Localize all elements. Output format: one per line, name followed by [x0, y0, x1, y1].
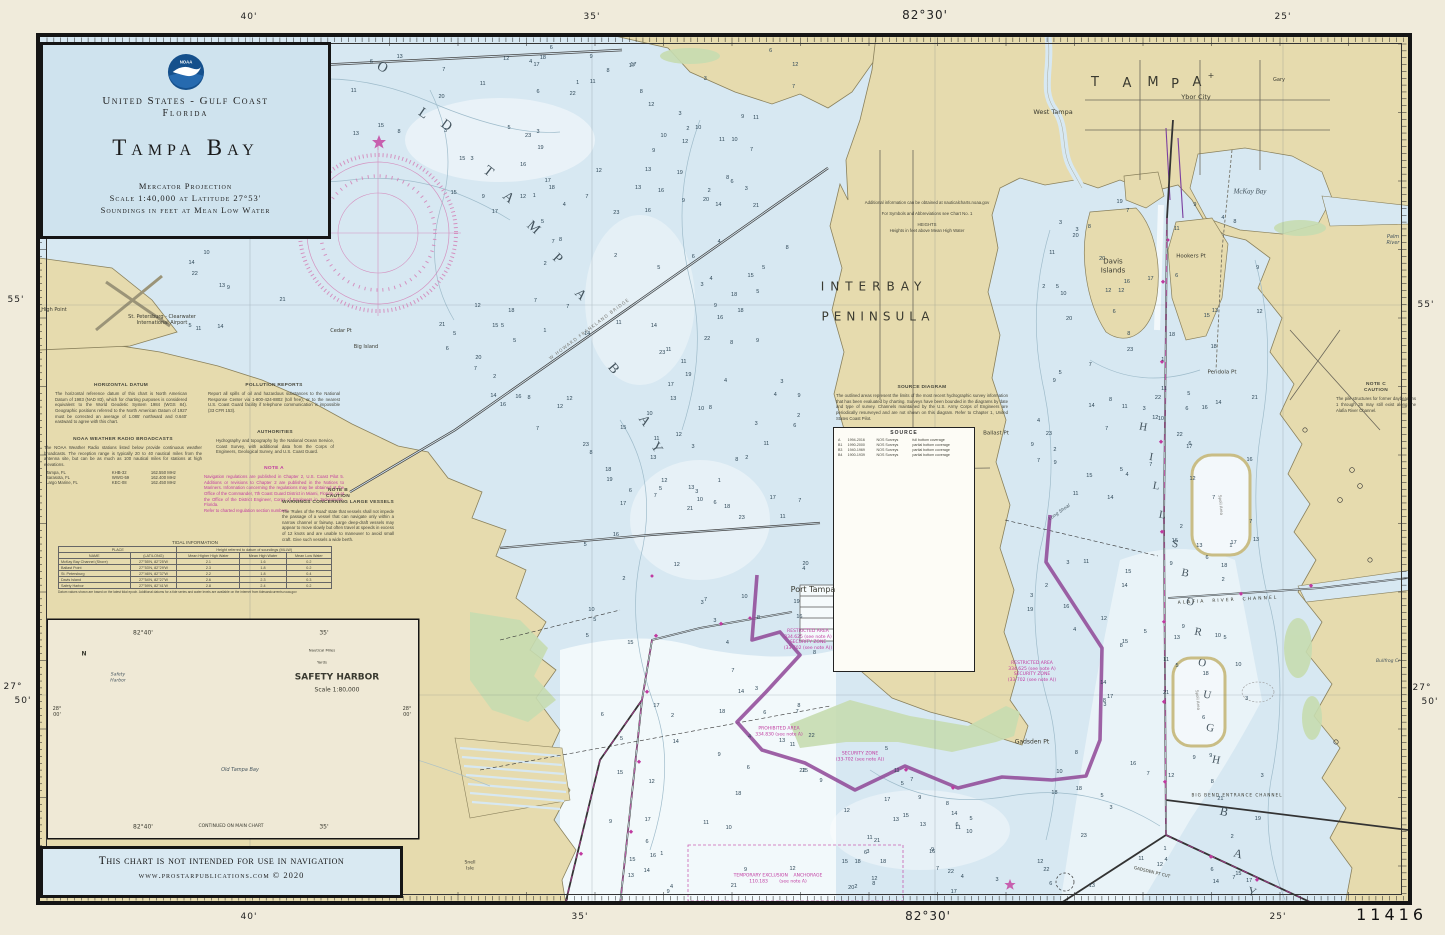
svg-text:NOAA: NOAA [179, 59, 192, 64]
map-label: M [1147, 75, 1158, 91]
graticule-label: 25' [1275, 12, 1292, 22]
map-label: CONTINUED ON MAIN CHART [198, 824, 263, 830]
map-label: Palm River [1387, 234, 1400, 247]
map-label: Yards [317, 661, 327, 666]
map-label: Ballast Pt [983, 431, 1009, 438]
map-label: RESTRICTED AREA 334.625 (see note A) SEC… [1008, 661, 1056, 684]
map-label: Hookers Pt [1176, 254, 1206, 261]
map-label: BIG BEND ENTRANCE CHANNEL [1191, 792, 1282, 797]
map-label: Ybor City [1181, 93, 1211, 101]
map-label: SECURITY ZONE (33-702 (see note A)) [836, 751, 884, 762]
map-label: 82°40' [133, 629, 153, 637]
graticule-label: 55' [1418, 300, 1435, 310]
graticule-label: 55' [8, 295, 25, 305]
map-label: 28° 00' [53, 706, 62, 719]
note-heights: Additional information can be obtained a… [862, 200, 992, 233]
graticule-label: 27° [1413, 683, 1432, 693]
graticule-label: 82°30' [902, 8, 948, 22]
title-region: United States - Gulf Coast [43, 95, 328, 107]
note-authorities: AUTHORITIESHydrography and topography by… [216, 430, 334, 455]
map-label: Snell Isle [465, 860, 476, 871]
chart-page: NOAA United States - Gulf Coast Florida … [0, 0, 1445, 935]
map-label: Davis Islands [1101, 257, 1125, 275]
map-label: Gary [1273, 77, 1285, 83]
map-label: P [1171, 77, 1179, 93]
map-label: + [1208, 71, 1215, 81]
map-label: A [1123, 76, 1132, 92]
note-note-c: NOTE C CAUTIONThe pile structures for fo… [1336, 382, 1416, 413]
graticule-label: 40' [241, 12, 258, 22]
disclaimer-box: This chart is not intended for use in na… [40, 846, 403, 898]
graticule-label: 35' [572, 912, 589, 922]
map-label: A [1193, 75, 1202, 91]
map-label: PENINSULA [822, 310, 935, 325]
map-label: 35' [319, 823, 328, 831]
map-label: West Tampa [1033, 108, 1072, 116]
publisher-url: www.prostarpublications.com © 2020 [43, 870, 400, 880]
title-block: NOAA United States - Gulf Coast Florida … [40, 42, 331, 239]
map-label: Port Tampa [791, 585, 836, 595]
chart-number: 11416 [1356, 905, 1427, 924]
tidal-information-table: TIDAL INFORMATION PLACEHeight referred t… [58, 540, 332, 594]
note-weather-radio: NOAA WEATHER RADIO BROADCASTSThe NOAA We… [44, 437, 202, 486]
graticule-label: 50' [1422, 697, 1439, 707]
note-horizontal-datum: HORIZONTAL DATUMThe horizontal reference… [55, 383, 187, 425]
note-pollution-reports: POLLUTION REPORTSReport all spills of oi… [208, 383, 340, 414]
map-label: High Point [41, 307, 67, 313]
map-label: Bullfrog Cr [1376, 659, 1400, 665]
map-label: St. Petersburg - Clearwater Internationa… [128, 314, 196, 327]
title-scale: Scale 1:40,000 at Latitude 27°53' [43, 193, 328, 203]
graticule-label: 50' [15, 696, 32, 706]
title-projection: Mercator Projection [43, 181, 328, 191]
map-label: T [1091, 75, 1099, 91]
map-label: Big Island [354, 344, 378, 350]
source-table-box: SOURCE A1994-2016NOS Surveysfull bottom … [833, 427, 975, 672]
disclaimer-line1: This chart is not intended for use in na… [43, 855, 400, 867]
noaa-logo-icon: NOAA [167, 53, 205, 91]
map-label: PROHIBITED AREA 334.830 (see note A) [755, 726, 803, 737]
graticule-label: 40' [241, 912, 258, 922]
source-table: A1994-2016NOS Surveysfull bottom coverag… [837, 438, 971, 458]
inset-box [48, 620, 418, 838]
graticule-label: 27° [4, 682, 23, 692]
graticule-label: 35' [584, 12, 601, 22]
graticule-label: 82°30' [905, 909, 951, 923]
map-label: Pendola Pt [1208, 370, 1237, 377]
graticule-label: 25' [1270, 912, 1287, 922]
map-label: TEMPORARY EXCLUSION ANCHORAGE 110.183 (s… [734, 873, 823, 884]
source-table-title: SOURCE [837, 430, 971, 436]
map-label: Old Tampa Bay [221, 767, 259, 773]
map-label: Safety Harbor [110, 672, 125, 683]
map-label: Scale 1:80,000 [315, 686, 360, 694]
map-label: Gadsden Pt [1015, 738, 1049, 746]
note-source-diagram: SOURCE DIAGRAMThe outlined areas represe… [836, 385, 1008, 421]
map-label: 82°40' [133, 823, 153, 831]
tide-footnote: Datum values shown are based on the late… [58, 590, 332, 594]
map-label: N [81, 650, 86, 658]
title-state: Florida [43, 108, 328, 119]
map-label: Nautical Miles [309, 649, 336, 654]
map-label: RESTRICTED AREA 334.625 (see note A) SEC… [784, 629, 832, 652]
map-label: 28° 00' [403, 706, 412, 719]
map-label: McKay Bay [1234, 188, 1267, 197]
map-label: 35' [319, 629, 328, 637]
map-label: Cedar Pt [330, 328, 351, 334]
chart-title: Tampa Bay [43, 135, 328, 161]
map-label: SAFETY HARBOR [295, 672, 379, 683]
note-note-b: NOTE B CAUTION WARNINGS CONCERNING LARGE… [282, 488, 394, 542]
title-soundings-note: Soundings in feet at Mean Low Water [43, 205, 328, 215]
